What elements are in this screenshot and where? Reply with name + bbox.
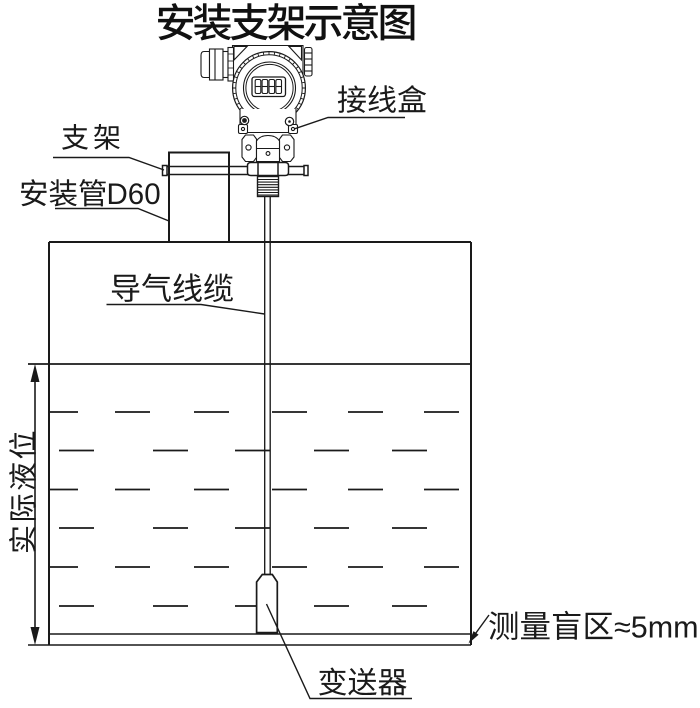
- svg-text:≈5mm: ≈5mm: [614, 611, 699, 645]
- svg-text:D60: D60: [107, 178, 161, 211]
